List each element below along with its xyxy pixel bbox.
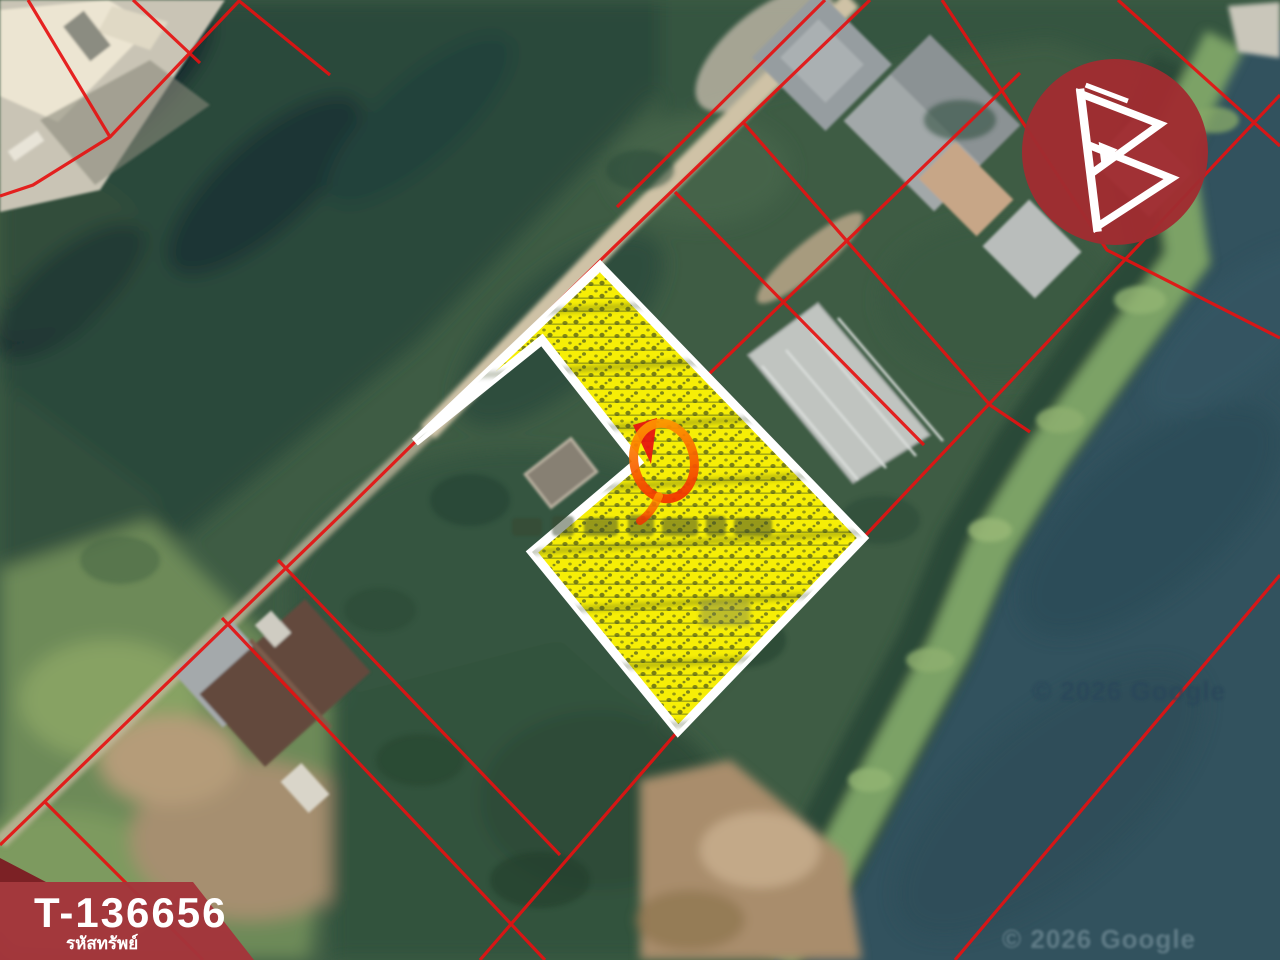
property-code: T-136656 [34, 889, 227, 936]
listing-map-image: © 2026 Google © 2026 Google T-136656 รหั… [0, 0, 1280, 960]
satellite-map: © 2026 Google © 2026 Google T-136656 รหั… [0, 0, 1280, 960]
google-watermark-center: © 2026 Google [1032, 676, 1226, 706]
property-code-label: รหัสทรัพย์ [66, 933, 138, 953]
google-watermark-bottom: © 2026 Google [1002, 924, 1196, 954]
brand-logo [1022, 59, 1208, 245]
